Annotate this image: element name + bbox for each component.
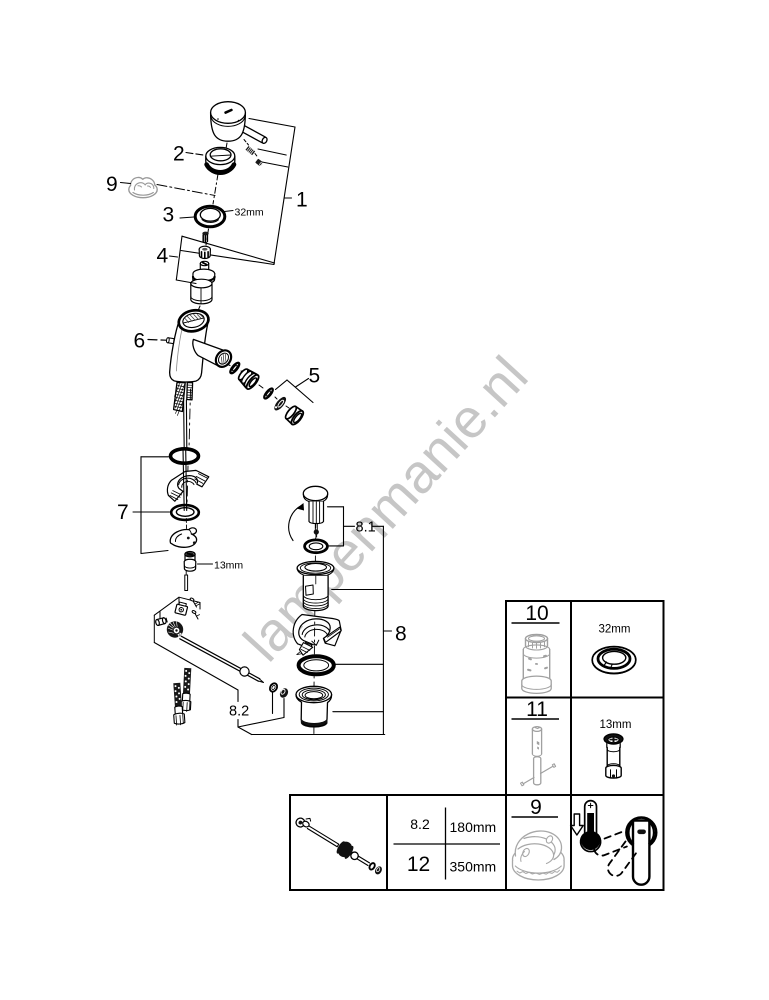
svg-text:32mm: 32mm	[235, 207, 264, 219]
svg-text:4: 4	[157, 245, 169, 268]
svg-text:11: 11	[526, 698, 548, 721]
svg-text:12: 12	[407, 853, 430, 876]
svg-text:5: 5	[309, 365, 321, 388]
svg-text:10: 10	[525, 602, 548, 625]
svg-text:180mm: 180mm	[450, 819, 497, 835]
svg-text:8.2: 8.2	[410, 816, 430, 832]
svg-text:6: 6	[134, 330, 146, 353]
svg-text:32mm: 32mm	[599, 624, 631, 636]
svg-text:7: 7	[117, 501, 129, 524]
svg-text:350mm: 350mm	[450, 859, 497, 875]
svg-text:3: 3	[163, 204, 175, 227]
svg-text:1: 1	[296, 189, 308, 212]
svg-text:8.2: 8.2	[229, 704, 249, 720]
svg-text:9: 9	[530, 796, 542, 819]
svg-text:2: 2	[173, 143, 185, 166]
svg-text:9: 9	[106, 173, 118, 196]
svg-text:lampenmanie.nl: lampenmanie.nl	[232, 345, 540, 673]
svg-text:13mm: 13mm	[214, 560, 243, 572]
svg-text:13mm: 13mm	[600, 719, 632, 731]
svg-text:8: 8	[395, 623, 407, 646]
svg-text:8.1: 8.1	[356, 520, 376, 536]
